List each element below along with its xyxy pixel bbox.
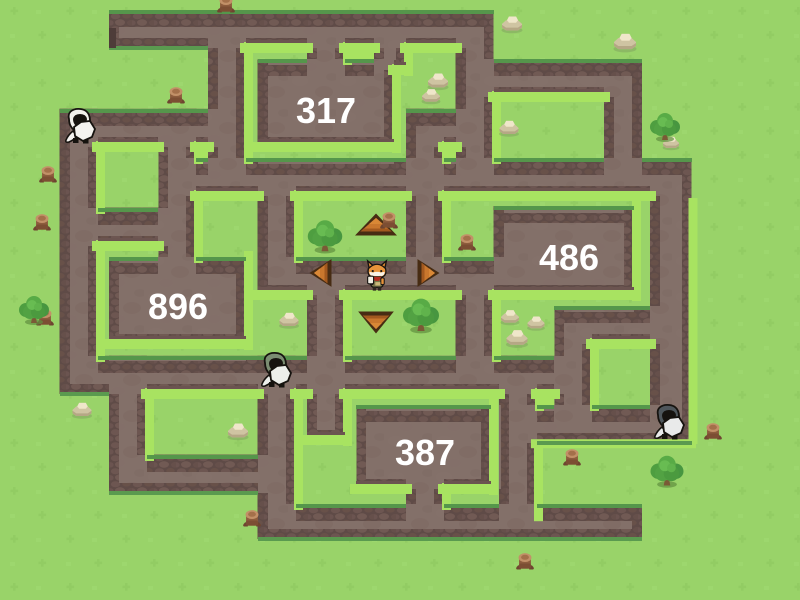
svg-text:317: 317 — [296, 90, 356, 131]
svg-text:387: 387 — [395, 432, 455, 473]
svg-text:896: 896 — [148, 286, 208, 327]
svg-text:486: 486 — [539, 237, 599, 278]
